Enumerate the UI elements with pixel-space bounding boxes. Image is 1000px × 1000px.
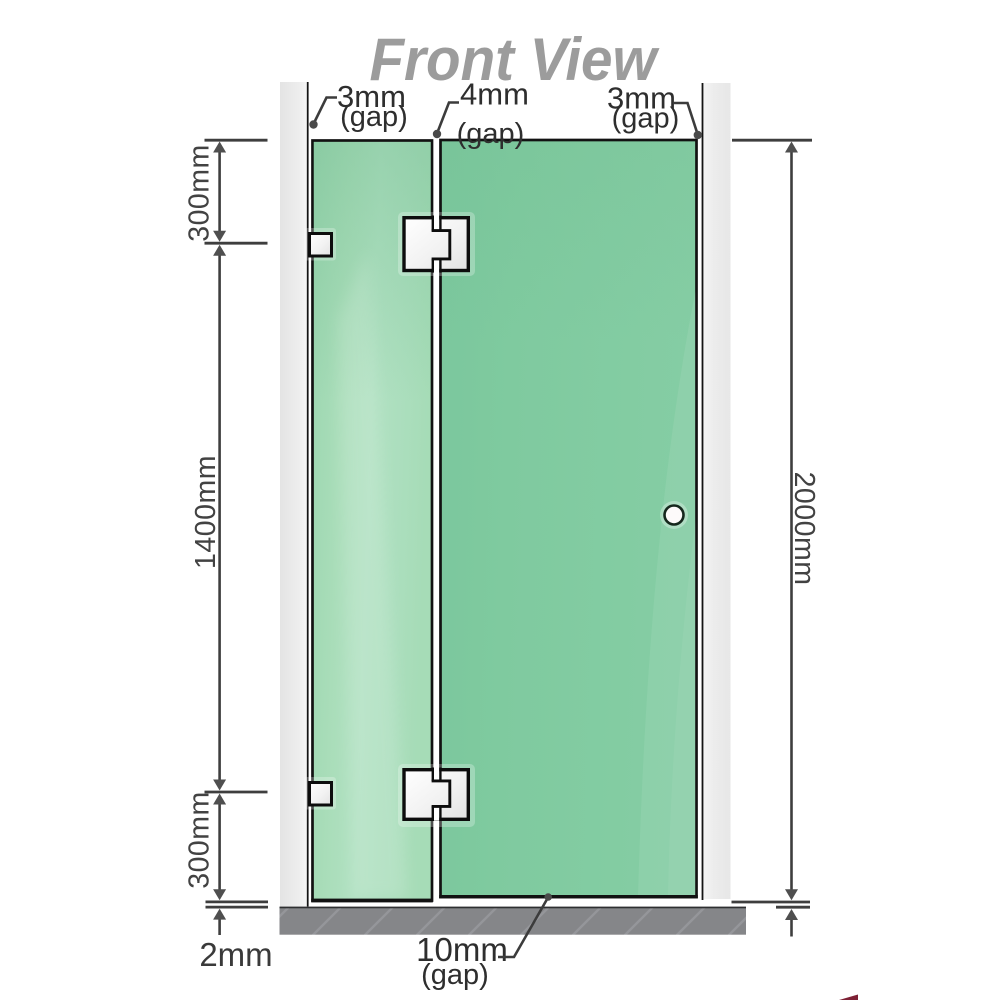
svg-text:(gap): (gap) xyxy=(421,959,489,991)
svg-text:2mm: 2mm xyxy=(199,936,272,973)
svg-text:1400mm: 1400mm xyxy=(190,455,222,569)
svg-text:4mm: 4mm xyxy=(460,77,529,112)
svg-text:(gap): (gap) xyxy=(457,118,525,150)
svg-text:(gap): (gap) xyxy=(612,103,680,135)
svg-text:2000mm: 2000mm xyxy=(788,472,820,586)
svg-text:300mm: 300mm xyxy=(184,791,216,889)
svg-text:(gap): (gap) xyxy=(340,101,408,133)
svg-text:300mm: 300mm xyxy=(184,144,216,242)
